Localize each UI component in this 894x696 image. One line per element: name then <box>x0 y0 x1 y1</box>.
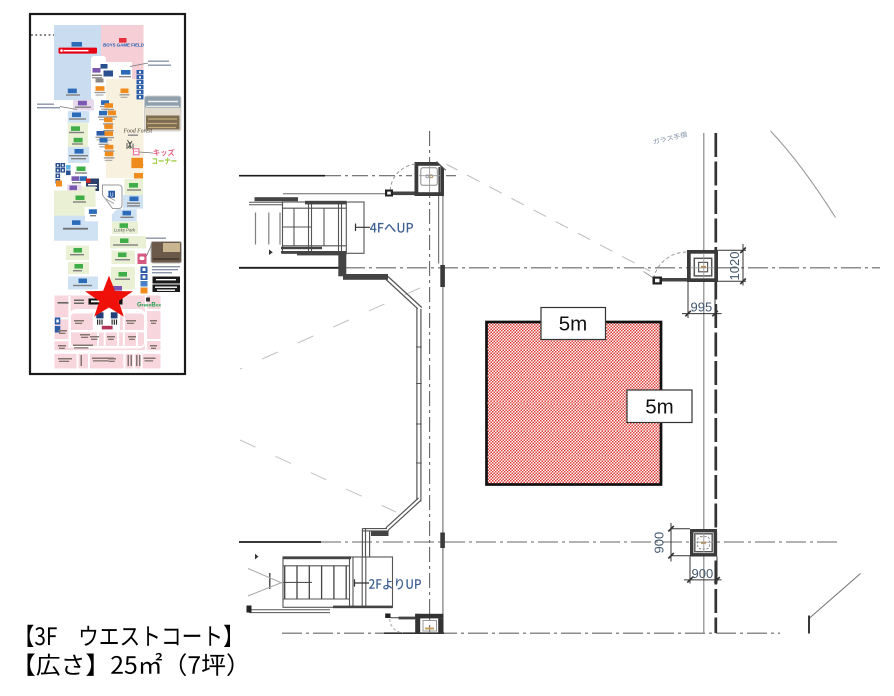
svg-text:900: 900 <box>692 566 714 581</box>
svg-text:U: U <box>110 192 114 198</box>
svg-text:5m: 5m <box>559 313 587 336</box>
svg-text:900: 900 <box>652 532 667 554</box>
svg-text:995: 995 <box>691 300 713 315</box>
svg-text:5m: 5m <box>645 396 673 419</box>
svg-text:BOYS GAME FIELD: BOYS GAME FIELD <box>103 43 144 48</box>
svg-text:Lucky Park: Lucky Park <box>114 228 136 233</box>
svg-text:1020: 1020 <box>727 252 742 281</box>
svg-text:Food Forest: Food Forest <box>123 129 153 135</box>
